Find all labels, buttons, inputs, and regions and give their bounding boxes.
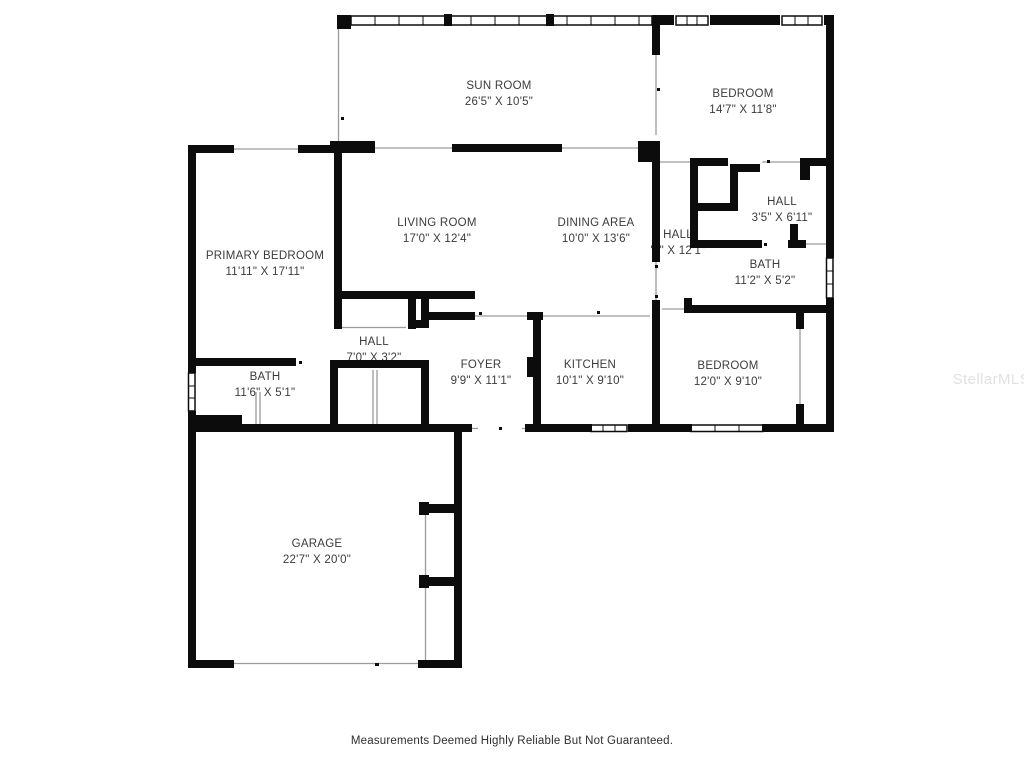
room-label-sun-room: SUN ROOM 26'5" X 10'5": [465, 78, 533, 110]
room-label-bedroom-lower: BEDROOM 12'0" X 9'10": [694, 358, 762, 390]
room-label-hall-center: HALL '1" X 12'1": [651, 227, 706, 259]
room-label-hall-right: HALL 3'5" X 6'11": [752, 194, 813, 226]
room-label-kitchen: KITCHEN 10'1" X 9'10": [556, 357, 624, 389]
floor-plan: SUN ROOM 26'5" X 10'5" BEDROOM 14'7" X 1…: [0, 0, 1024, 768]
room-label-hall-small: HALL 7'0" X 3'2": [347, 334, 402, 366]
room-label-living-room: LIVING ROOM 17'0" X 12'4": [397, 215, 476, 247]
floorplan-walls: [0, 0, 1024, 768]
room-label-bath-left: BATH 11'6" X 5'1": [235, 369, 296, 401]
room-label-bedroom-upper: BEDROOM 14'7" X 11'8": [709, 86, 776, 118]
room-label-bath-right: BATH 11'2" X 5'2": [735, 257, 796, 289]
stellar-mls-watermark: StellarMLS: [953, 371, 1024, 388]
room-label-dining-area: DINING AREA 10'0" X 13'6": [558, 215, 635, 247]
room-label-foyer: FOYER 9'9" X 11'1": [451, 357, 512, 389]
disclaimer-text: Measurements Deemed Highly Reliable But …: [0, 735, 1024, 747]
room-label-garage: GARAGE 22'7" X 20'0": [283, 536, 351, 568]
room-label-primary-bedroom: PRIMARY BEDROOM 11'11" X 17'11": [206, 248, 324, 280]
